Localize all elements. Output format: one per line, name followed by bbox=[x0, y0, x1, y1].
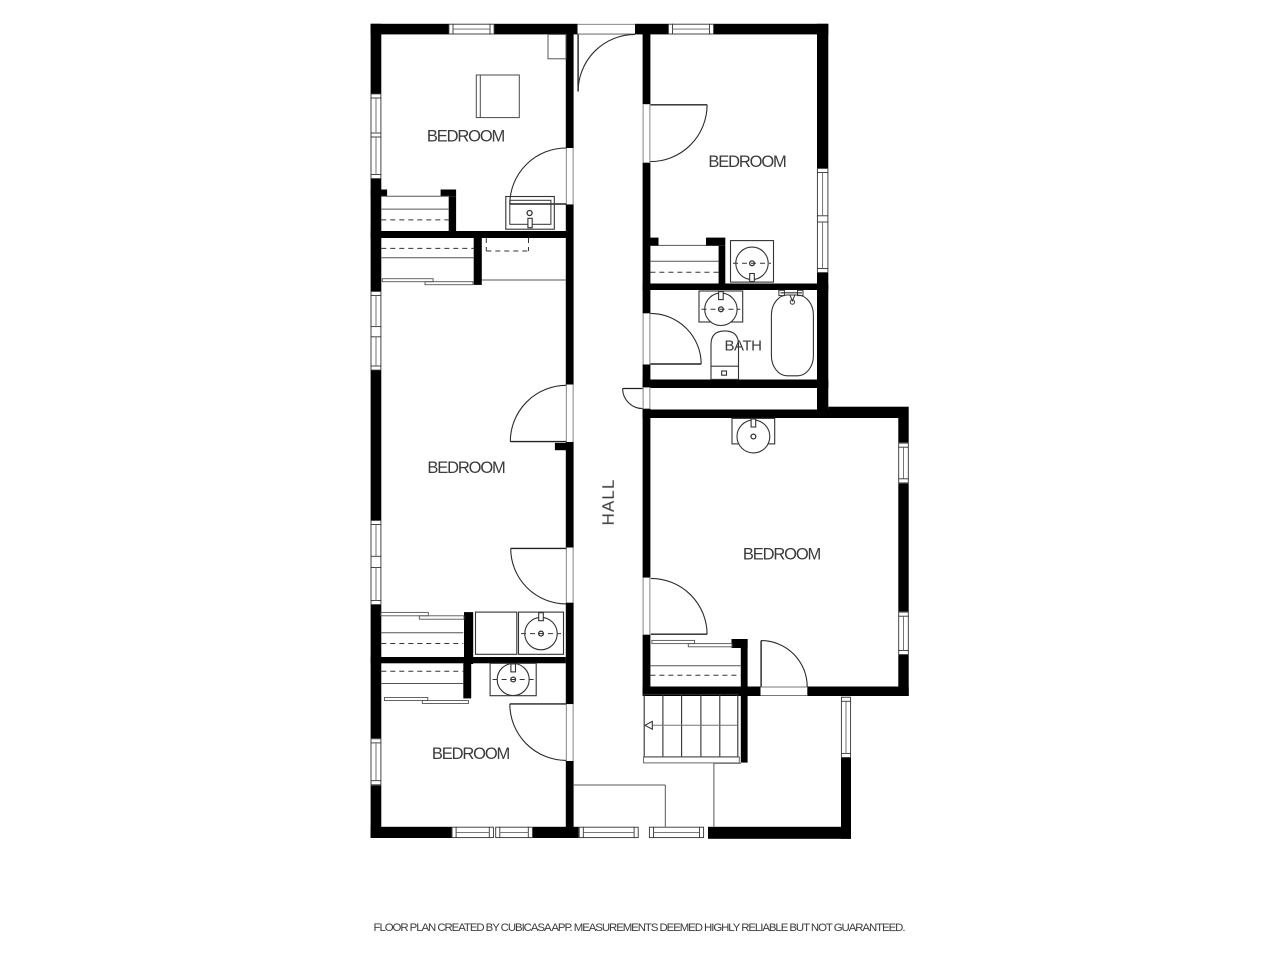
svg-text:BEDROOM: BEDROOM bbox=[432, 745, 510, 763]
svg-text:BEDROOM: BEDROOM bbox=[427, 127, 505, 145]
svg-text:BATH: BATH bbox=[725, 337, 762, 354]
svg-text:BEDROOM: BEDROOM bbox=[743, 545, 821, 563]
svg-text:BEDROOM: BEDROOM bbox=[427, 459, 505, 477]
svg-text:HALL: HALL bbox=[599, 479, 618, 526]
svg-text:FLOOR PLAN CREATED BY CUBICASA: FLOOR PLAN CREATED BY CUBICASA APP. MEAS… bbox=[374, 922, 906, 934]
svg-text:BEDROOM: BEDROOM bbox=[708, 153, 786, 171]
